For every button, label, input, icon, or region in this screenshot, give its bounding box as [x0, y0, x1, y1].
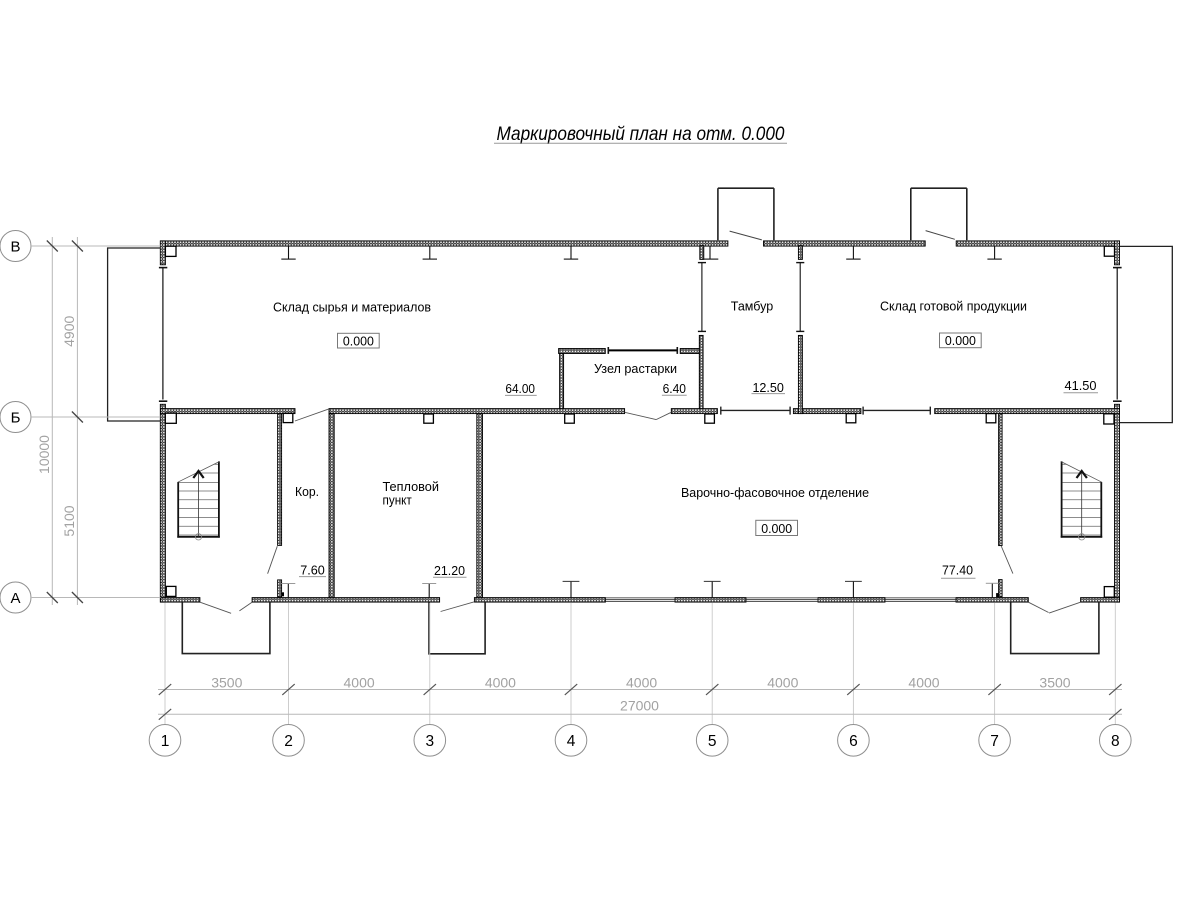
svg-text:0.000: 0.000	[945, 333, 976, 348]
svg-text:6.40: 6.40	[663, 381, 686, 396]
svg-text:Узел растарки: Узел растарки	[594, 361, 677, 376]
svg-text:8: 8	[1111, 733, 1120, 750]
svg-text:4: 4	[567, 733, 576, 750]
svg-text:0.000: 0.000	[343, 334, 374, 349]
svg-text:41.50: 41.50	[1065, 378, 1097, 393]
svg-text:5100: 5100	[61, 505, 77, 536]
svg-text:2: 2	[284, 733, 293, 750]
svg-text:Тамбур: Тамбур	[731, 299, 774, 314]
svg-text:4000: 4000	[485, 674, 516, 690]
svg-text:3: 3	[425, 733, 434, 750]
svg-text:В: В	[10, 238, 20, 255]
svg-text:21.20: 21.20	[434, 563, 465, 578]
svg-text:6: 6	[849, 733, 858, 750]
svg-text:7: 7	[990, 733, 999, 750]
svg-text:64.00: 64.00	[505, 381, 535, 396]
svg-text:7.60: 7.60	[300, 563, 325, 578]
svg-text:5: 5	[708, 733, 717, 750]
svg-text:Кор.: Кор.	[295, 484, 319, 499]
svg-text:Варочно-фасовочное отделение: Варочно-фасовочное отделение	[681, 485, 869, 500]
svg-text:пункт: пункт	[383, 493, 412, 508]
svg-text:4000: 4000	[908, 674, 939, 690]
svg-text:4000: 4000	[626, 674, 657, 690]
svg-text:Маркировочный план на отм. 0.0: Маркировочный план на отм. 0.000	[497, 123, 785, 145]
svg-text:Б: Б	[11, 409, 21, 426]
svg-text:4000: 4000	[344, 674, 375, 690]
svg-text:Склад сырья и материалов: Склад сырья и материалов	[273, 300, 431, 315]
svg-text:12.50: 12.50	[752, 380, 784, 395]
svg-text:10000: 10000	[36, 435, 52, 474]
svg-text:0.000: 0.000	[761, 521, 792, 536]
svg-text:27000: 27000	[620, 697, 659, 713]
svg-text:3500: 3500	[1039, 674, 1070, 690]
svg-text:3500: 3500	[211, 674, 242, 690]
svg-text:Склад готовой продукции: Склад готовой продукции	[880, 299, 1027, 314]
svg-text:1: 1	[161, 733, 170, 750]
svg-text:4000: 4000	[767, 674, 798, 690]
svg-text:А: А	[10, 590, 20, 607]
svg-text:77.40: 77.40	[942, 563, 973, 578]
svg-text:4900: 4900	[61, 316, 77, 347]
